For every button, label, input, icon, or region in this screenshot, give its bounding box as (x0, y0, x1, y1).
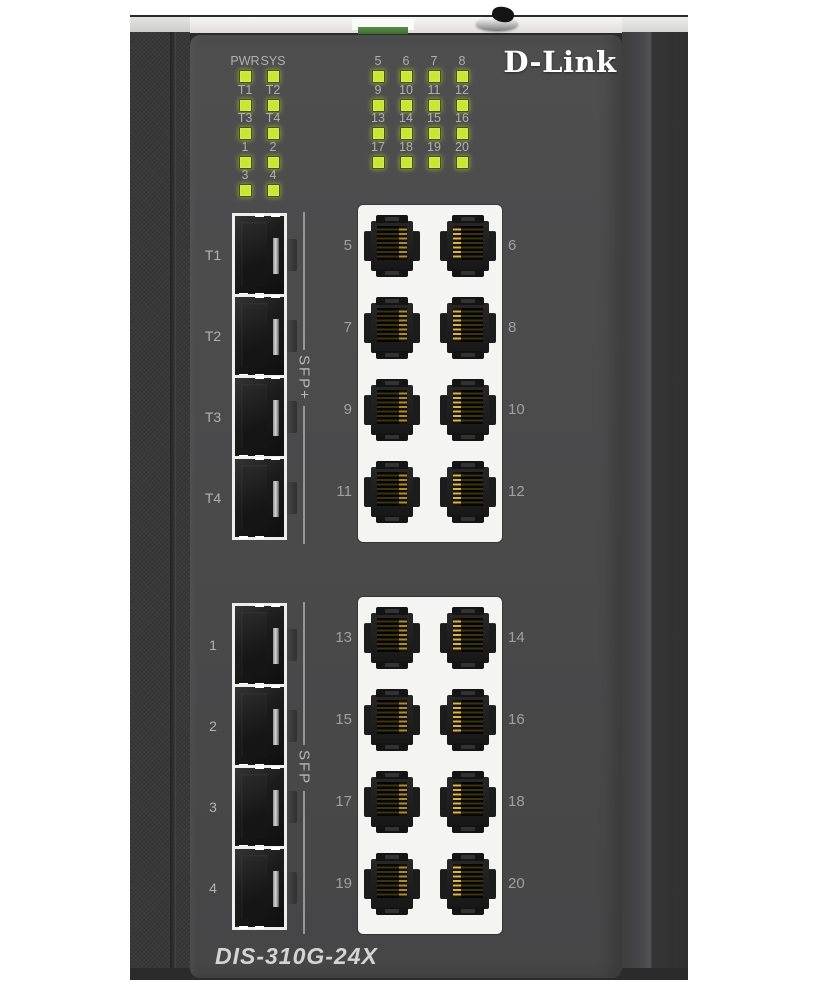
port-number: 8 (508, 297, 544, 359)
led-label: 2 (270, 141, 277, 154)
din-rail-bracket (130, 32, 190, 968)
chassis-side-panel (622, 32, 652, 968)
led-indicator (372, 127, 385, 140)
rj45-port-panel-bottom (358, 597, 502, 934)
sfp-port-label: 1 (198, 637, 228, 653)
led-label: 1 (242, 141, 249, 154)
led-label: 18 (399, 141, 413, 154)
led-label: 20 (455, 141, 469, 154)
sfp-cage (232, 294, 287, 378)
led-indicator (428, 99, 441, 112)
led-row: 1 2 (231, 141, 287, 170)
led-label: 14 (399, 112, 413, 125)
led-label: 8 (459, 55, 466, 68)
sfp-port: 4 (232, 846, 287, 930)
ethernet-port (364, 297, 420, 359)
port-number: 11 (320, 461, 352, 523)
sfp-cage (232, 375, 287, 459)
ethernet-port (364, 215, 420, 277)
led-label: SYS (260, 55, 285, 68)
switch-front-panel: PWR SYS T1 T2 T3 T4 1 2 3 4 (190, 35, 622, 978)
sfp-port-label: T4 (198, 490, 228, 506)
ethernet-port (364, 689, 420, 751)
led-indicator (400, 156, 413, 169)
sys-led-indicator (267, 70, 280, 83)
ethernet-port (440, 853, 496, 915)
led-label: 3 (242, 169, 249, 182)
chassis-top-edge-left (130, 17, 190, 33)
chassis-side-edge (652, 32, 688, 968)
led-indicator (267, 184, 280, 197)
rj45-port-panel-top (358, 205, 502, 542)
ethernet-port (364, 607, 420, 669)
port-number: 19 (320, 853, 352, 915)
led-indicator (372, 99, 385, 112)
led-indicator (400, 127, 413, 140)
led-row: 9 10 11 12 (364, 84, 476, 113)
sfp-latch (273, 319, 279, 355)
port-led-panel: 5 6 7 8 9 10 11 12 13 14 15 16 (364, 55, 476, 169)
led-indicator (239, 184, 252, 197)
led-row: T3 T4 (231, 112, 287, 141)
port-number: 15 (320, 689, 352, 751)
port-number: 18 (508, 771, 544, 833)
sfp-latch (273, 790, 279, 826)
pwr-led-indicator (239, 70, 252, 83)
led-label: T4 (266, 112, 281, 125)
sfp-port-label: T3 (198, 409, 228, 425)
led-label: 9 (375, 84, 382, 97)
led-row: 5 6 7 8 (364, 55, 476, 84)
led-indicator (239, 156, 252, 169)
led-label: 6 (403, 55, 410, 68)
led-indicator (267, 99, 280, 112)
led-label: 13 (371, 112, 385, 125)
port-number: 5 (320, 215, 352, 277)
led-row: T1 T2 (231, 84, 287, 113)
led-indicator (400, 70, 413, 83)
switch-device: PWR SYS T1 T2 T3 T4 1 2 3 4 (130, 15, 688, 980)
port-number: 14 (508, 607, 544, 669)
sfp-group-divider: SFP (296, 602, 312, 934)
led-label: 17 (371, 141, 385, 154)
led-indicator (239, 127, 252, 140)
ethernet-port (440, 215, 496, 277)
status-led-panel: PWR SYS T1 T2 T3 T4 1 2 3 4 (231, 55, 287, 198)
port-number: 6 (508, 215, 544, 277)
sfp-port: 1 (232, 603, 287, 687)
led-label: T1 (238, 84, 253, 97)
led-label: 12 (455, 84, 469, 97)
ethernet-port (364, 853, 420, 915)
led-label: 10 (399, 84, 413, 97)
sfp-cage (232, 684, 287, 768)
sfp-plus-port: T3 (232, 375, 287, 459)
port-number: 17 (320, 771, 352, 833)
led-indicator (428, 70, 441, 83)
ethernet-port (364, 461, 420, 523)
sfp-port-label: 4 (198, 880, 228, 896)
sfp-cage (232, 765, 287, 849)
sfp-latch (273, 400, 279, 436)
led-row: PWR SYS (231, 55, 287, 84)
sfp-plus-port-group: T1 T2 T3 T4 (232, 213, 287, 540)
brand-logo: D-Link (490, 45, 630, 79)
led-indicator (428, 156, 441, 169)
led-indicator (267, 127, 280, 140)
led-label: 11 (428, 84, 441, 97)
led-indicator (267, 156, 280, 169)
ethernet-port (440, 461, 496, 523)
sfp-latch (273, 481, 279, 517)
product-photo: PWR SYS T1 T2 T3 T4 1 2 3 4 (0, 0, 820, 1000)
sfp-cage (232, 846, 287, 930)
led-label: 16 (455, 112, 469, 125)
led-indicator (239, 99, 252, 112)
port-number: 7 (320, 297, 352, 359)
led-row: 17 18 19 20 (364, 141, 476, 170)
led-label: T2 (266, 84, 281, 97)
ethernet-port (440, 689, 496, 751)
sfp-port-group: 1 2 3 4 (232, 603, 287, 930)
power-terminal-block (358, 27, 408, 34)
sfp-plus-port: T4 (232, 456, 287, 540)
led-indicator (400, 99, 413, 112)
led-label: 4 (270, 169, 277, 182)
sfp-port-label: 2 (198, 718, 228, 734)
led-indicator (372, 70, 385, 83)
port-number: 10 (508, 379, 544, 441)
sfp-plus-group-divider: SFP+ (296, 212, 312, 544)
led-row: 13 14 15 16 (364, 112, 476, 141)
sfp-latch (273, 628, 279, 664)
led-label: T3 (238, 112, 253, 125)
led-indicator (456, 127, 469, 140)
led-label: 7 (431, 55, 438, 68)
led-label: PWR (230, 55, 259, 68)
led-indicator (456, 70, 469, 83)
port-number: 9 (320, 379, 352, 441)
led-label: 15 (427, 112, 441, 125)
port-number: 16 (508, 689, 544, 751)
led-label: 5 (375, 55, 382, 68)
sfp-port-label: 3 (198, 799, 228, 815)
ethernet-port (364, 379, 420, 441)
led-indicator (372, 156, 385, 169)
sfp-cage (232, 603, 287, 687)
sfp-port: 2 (232, 684, 287, 768)
port-number: 12 (508, 461, 544, 523)
sfp-plus-port: T2 (232, 294, 287, 378)
sfp-latch (273, 871, 279, 907)
sfp-cage (232, 213, 287, 297)
sfp-port-label: T2 (198, 328, 228, 344)
led-label: 19 (427, 141, 441, 154)
sfp-latch (273, 238, 279, 274)
sfp-port-label: T1 (198, 247, 228, 263)
sfp-group-label: SFP (296, 750, 313, 785)
chassis-top-edge-right (622, 17, 688, 33)
led-row: 3 4 (231, 169, 287, 198)
model-label: DIS-310G-24X (215, 943, 378, 970)
sfp-plus-port: T1 (232, 213, 287, 297)
ethernet-port (440, 607, 496, 669)
led-indicator (456, 99, 469, 112)
sfp-cage (232, 456, 287, 540)
ethernet-port (440, 297, 496, 359)
port-number: 13 (320, 607, 352, 669)
led-indicator (456, 156, 469, 169)
sfp-plus-group-label: SFP+ (296, 355, 313, 401)
led-indicator (428, 127, 441, 140)
ethernet-port (364, 771, 420, 833)
ethernet-port (440, 771, 496, 833)
sfp-port: 3 (232, 765, 287, 849)
sfp-latch (273, 709, 279, 745)
ethernet-port (440, 379, 496, 441)
port-number: 20 (508, 853, 544, 915)
